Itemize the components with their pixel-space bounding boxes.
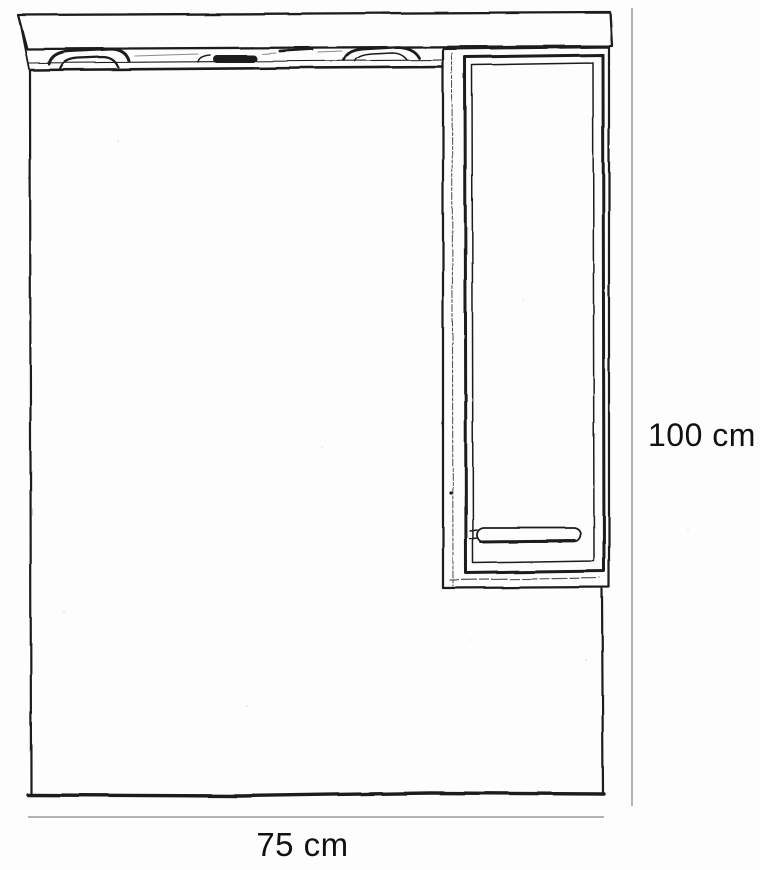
- cabinet-door: [465, 55, 604, 573]
- technical-drawing-canvas: [0, 0, 760, 870]
- lamp-right: [344, 47, 419, 61]
- dimension-lines: [28, 8, 632, 817]
- mirror-panel: [28, 71, 604, 796]
- hinge-dot: [449, 491, 452, 494]
- width-dimension-label: 75 cm: [240, 826, 365, 864]
- side-cabinet: [443, 47, 609, 588]
- door-handle: [470, 528, 581, 542]
- scan-noise: [63, 140, 689, 707]
- lamp-left: [49, 49, 129, 69]
- mirror-cabinet-diagram: 100 cm 75 cm: [0, 0, 760, 870]
- unit-drawing: [18, 12, 612, 796]
- height-dimension-label: 100 cm: [648, 416, 756, 454]
